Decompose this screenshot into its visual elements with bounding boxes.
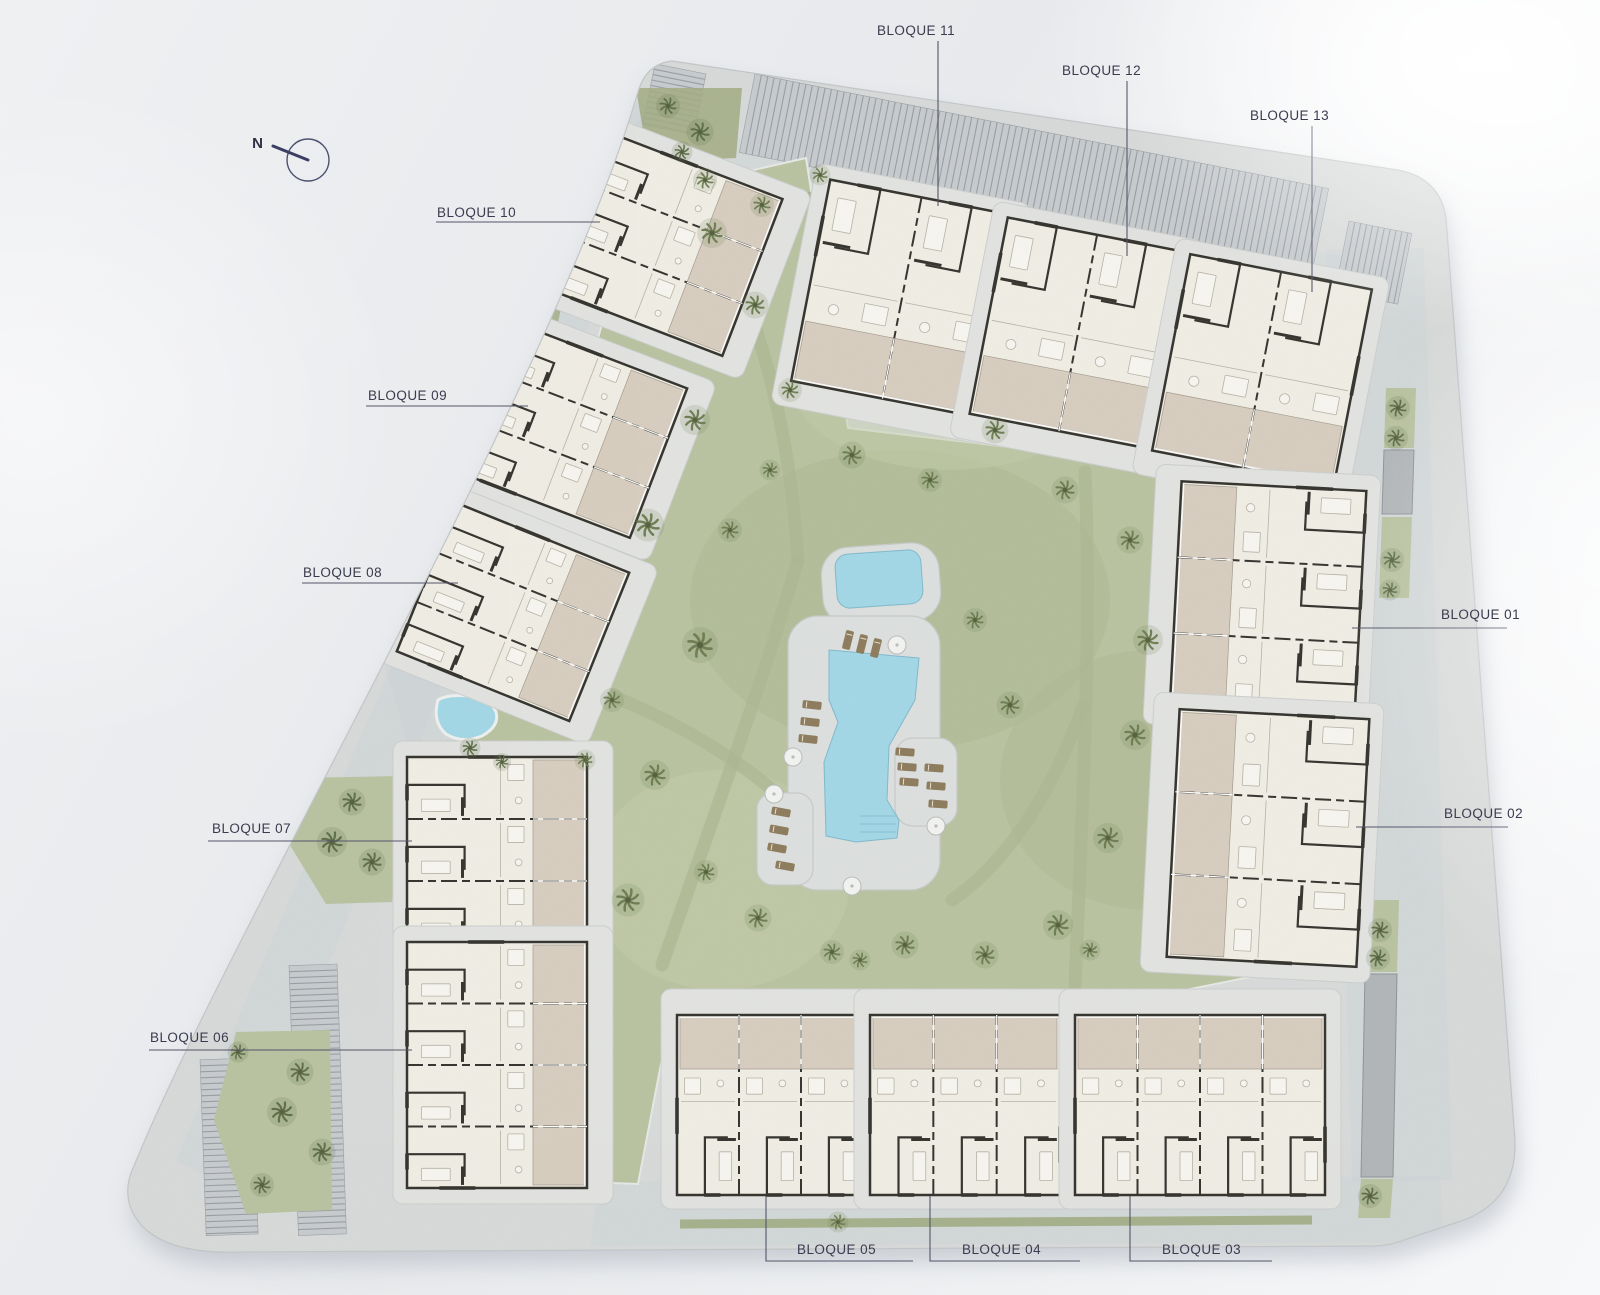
site-plan-page: N BLOQUE 10 BLOQUE 09 BLOQUE 08 BLOQUE 0… (0, 0, 1600, 1295)
label-bloque-11: BLOQUE 11 (877, 23, 955, 38)
label-bloque-04: BLOQUE 04 (962, 1242, 1041, 1257)
label-bloque-13: BLOQUE 13 (1250, 108, 1329, 123)
label-bloque-03: BLOQUE 03 (1162, 1242, 1241, 1257)
label-bloque-06: BLOQUE 06 (150, 1030, 229, 1045)
label-bloque-01: BLOQUE 01 (1441, 607, 1520, 622)
label-bloque-05: BLOQUE 05 (797, 1242, 876, 1257)
label-bloque-10: BLOQUE 10 (437, 205, 516, 220)
block-labels-layer: BLOQUE 10 BLOQUE 09 BLOQUE 08 BLOQUE 07 … (0, 0, 1600, 1295)
label-bloque-12: BLOQUE 12 (1062, 63, 1141, 78)
label-bloque-02: BLOQUE 02 (1444, 806, 1523, 821)
label-bloque-08: BLOQUE 08 (303, 565, 382, 580)
label-bloque-09: BLOQUE 09 (368, 388, 447, 403)
label-bloque-07: BLOQUE 07 (212, 821, 291, 836)
